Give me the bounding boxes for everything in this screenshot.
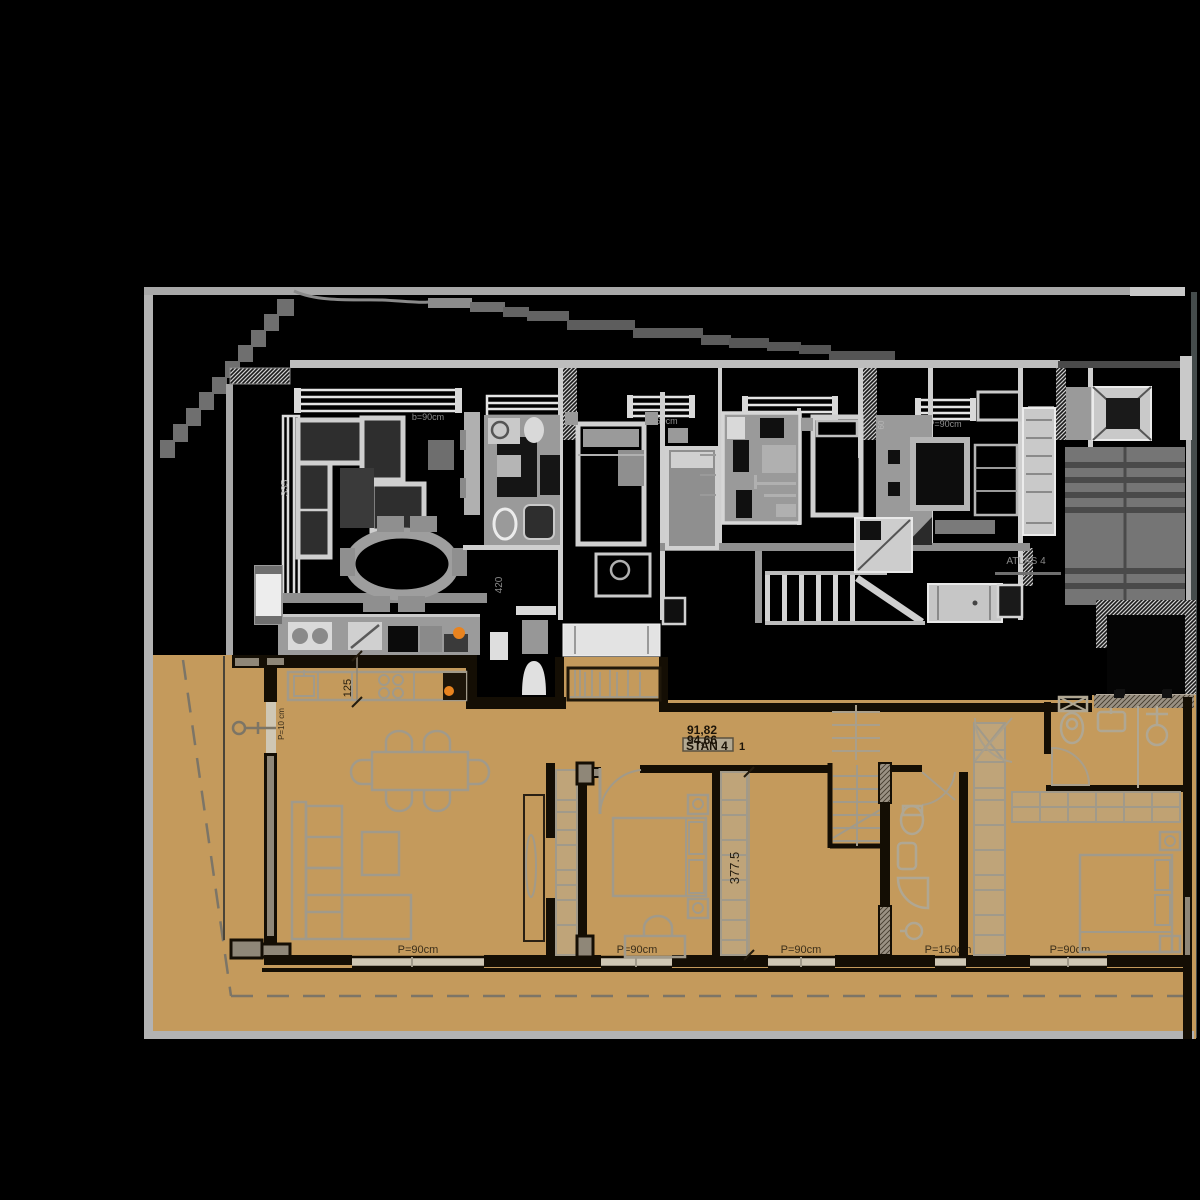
svg-text:P=90cm: P=90cm: [398, 944, 439, 956]
svg-text:335: 335: [280, 479, 291, 496]
svg-text:P=90cm: P=90cm: [1050, 944, 1091, 956]
svg-text:P=10 cm: P=10 cm: [277, 708, 286, 740]
svg-text:377.5: 377.5: [727, 852, 742, 885]
svg-text:P=90cm: P=90cm: [781, 944, 822, 956]
svg-text:1: 1: [739, 741, 745, 753]
svg-text:420: 420: [494, 576, 505, 593]
svg-text:P=90cm: P=90cm: [928, 419, 961, 429]
svg-text:b=90cm: b=90cm: [412, 412, 444, 422]
svg-text:P=90cm: P=90cm: [617, 944, 658, 956]
svg-text:60: 60: [877, 420, 886, 429]
svg-text:STAN 4: STAN 4: [686, 739, 728, 753]
svg-text:125: 125: [342, 679, 354, 697]
svg-text:ATLAS 4: ATLAS 4: [1006, 556, 1046, 567]
